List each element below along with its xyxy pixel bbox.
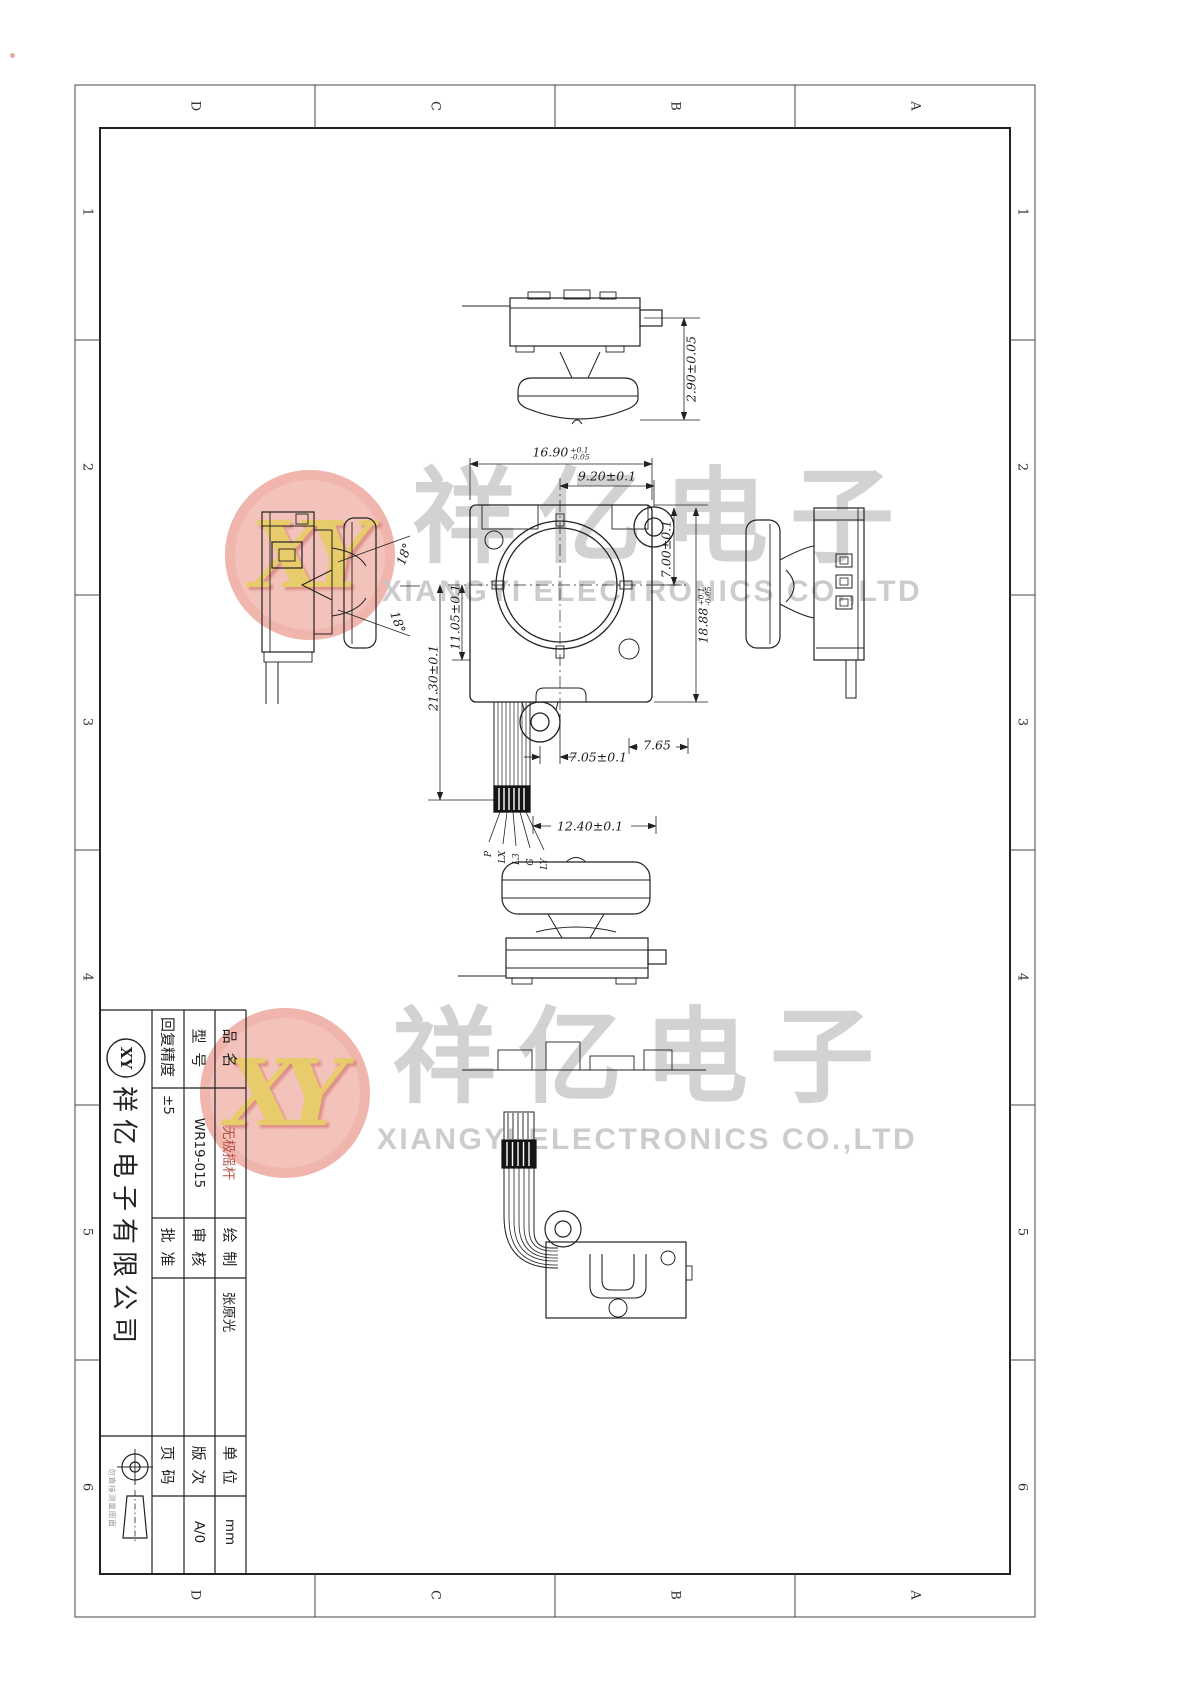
dim-18-88-tol: +0.1-0.05 [697,586,711,605]
tb-model-label: 型 号 [189,1029,210,1070]
dim-12-40: 12.40±0.1 [557,819,623,834]
tb-unit-label: 单 位 [220,1446,241,1487]
pin-label-g: G [526,858,536,865]
tb-company-name: 祥亿电子有限公司 [108,1086,145,1350]
dim-7-65: 7.65 [643,738,671,753]
zone-letter-top-c: C [428,101,443,111]
zone-letter-top-a: A [908,101,923,110]
zone-letter-bottom-d: D [188,1590,203,1600]
zone-number-right-6: 6 [1015,1483,1030,1491]
dim-18-88: 18.88+0.1-0.05 [695,586,711,643]
tb-rev-value: A/0 [191,1521,207,1543]
view-side-bottom [458,858,666,985]
view-side-right [746,508,864,698]
sheet-frame [75,85,1035,1617]
tb-page-label: 页 码 [158,1446,179,1487]
tb-check-label: 审 核 [189,1228,210,1269]
tb-product-label: 品 名 [220,1029,241,1070]
dim-7-05: 7.05±0.1 [569,750,627,765]
zone-number-left-2: 2 [80,463,95,471]
zone-number-right-5: 5 [1015,1228,1030,1236]
pin-label-ly: LY [540,858,550,869]
tb-draw-value: 张原光 [220,1292,240,1333]
zone-number-right-3: 3 [1015,718,1030,726]
view-bottom-ffc [462,1042,706,1318]
pin-label-l3: L3 [512,853,522,865]
zone-letter-bottom-a: A [908,1590,923,1599]
dim-16-90: 16.90+0.1-0.05 [532,444,589,460]
dim-2-90: 2.90±0.05 [684,336,699,402]
tb-logo: XY [117,1047,135,1069]
dim-11-05: 11.05±0.1 [448,584,463,650]
zone-letter-top-d: D [188,101,203,111]
tb-draw-label: 绘 制 [220,1228,241,1269]
zone-number-left-3: 3 [80,718,95,726]
view-front-main [448,478,688,850]
zone-letter-top-b: B [668,101,683,111]
zone-number-left-1: 1 [80,208,95,216]
dim-9-20: 9.20±0.1 [578,469,636,484]
dim-18-88-dn: -0.05 [704,586,711,605]
zone-number-right-2: 2 [1015,463,1030,471]
tb-precision-value: ±5 [160,1095,176,1115]
tb-unit-value: mm [222,1519,238,1545]
zone-number-left-4: 4 [80,973,95,981]
zone-letter-bottom-b: B [668,1590,683,1600]
zone-number-right-1: 1 [1015,208,1030,216]
dim-16-90-main: 16.90 [532,444,568,459]
tb-precision-label: 回复精度 [158,1017,179,1077]
zone-number-left-5: 5 [80,1228,95,1236]
zone-letter-bottom-c: C [428,1590,443,1600]
tb-product-value: 无极摇杆 [220,1126,240,1180]
dim-16-90-dn: -0.05 [570,453,589,460]
pin-label-lx: LX [498,851,508,863]
tb-model-value: WR19-015 [191,1118,207,1189]
dim-18-88-main: 18.88 [695,608,710,644]
pin-label-p: P [484,851,494,857]
tb-note: 勿直接测量图面 [107,1468,118,1528]
drawing-lineart [0,0,1200,1697]
tb-approve-label: 批 准 [158,1228,179,1269]
view-side-top [462,290,662,424]
dim-16-90-tol: +0.1-0.05 [570,446,589,460]
dim-21-30: 21.30±0.1 [426,645,441,711]
view-side-left [262,512,376,704]
dim-7-00: 7.00±0.1 [659,520,674,578]
zone-number-left-6: 6 [80,1483,95,1491]
drawing-sheet: XY 祥 亿 电 子 XIANGYI ELECTRONICS CO.,LTD X… [0,0,1200,1697]
zone-number-right-4: 4 [1015,973,1030,981]
tb-rev-label: 版 次 [189,1446,210,1487]
